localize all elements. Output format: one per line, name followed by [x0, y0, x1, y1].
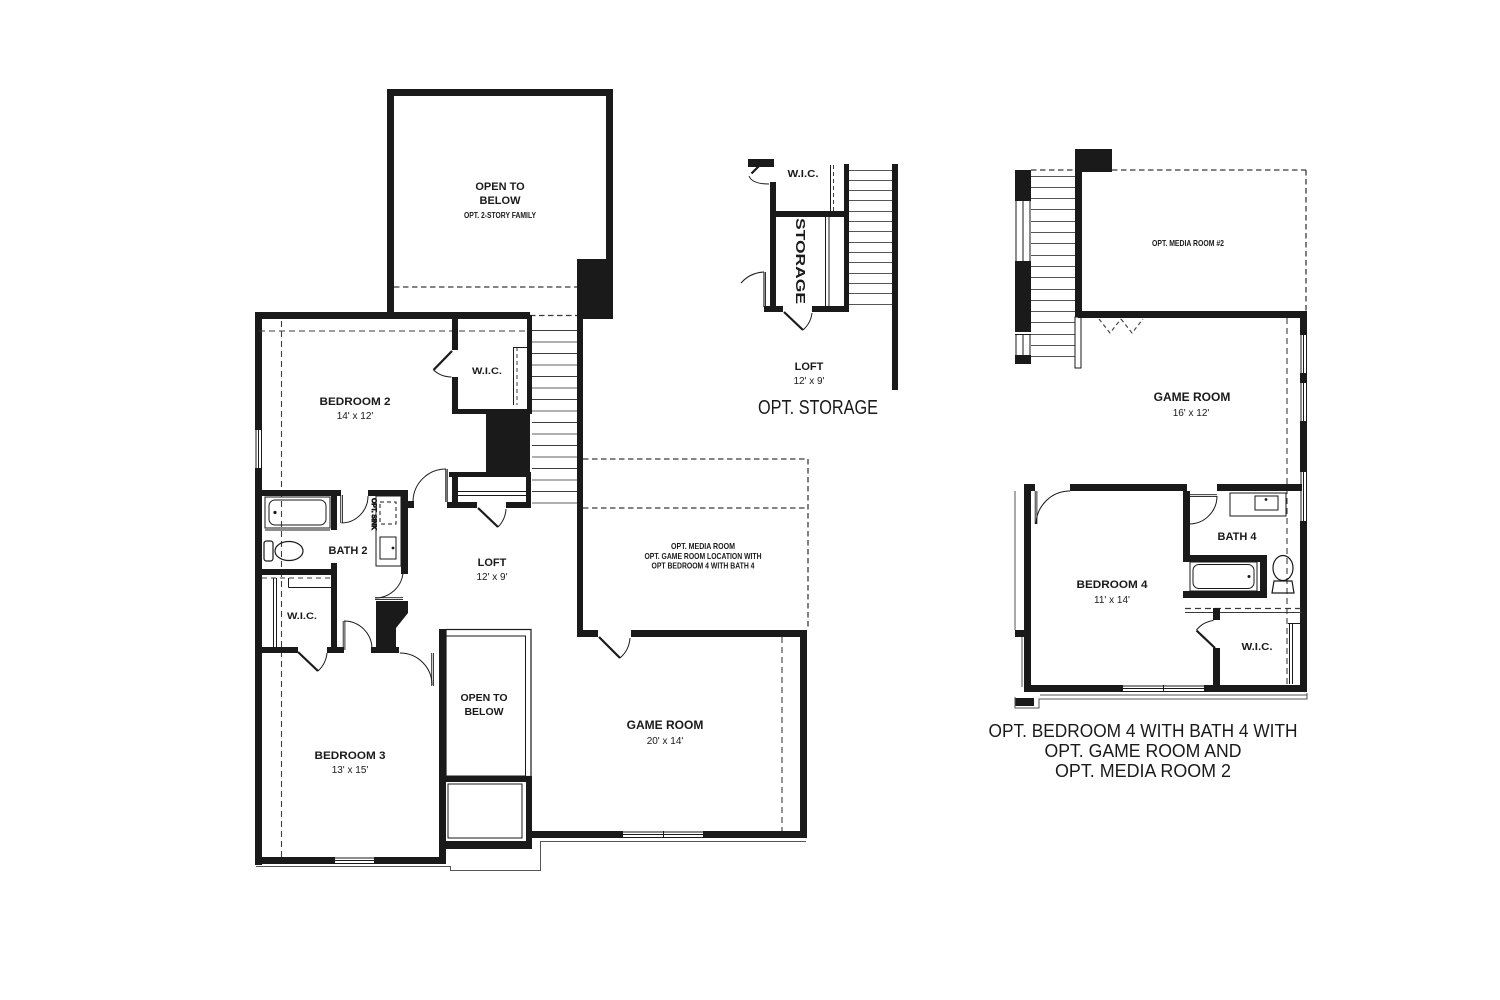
svg-text:BEDROOM 4: BEDROOM 4 — [1077, 579, 1149, 591]
svg-text:OPT. BEDROOM 4 WITH BATH 4 WIT: OPT. BEDROOM 4 WITH BATH 4 WITH — [989, 721, 1298, 741]
svg-text:13' x 15': 13' x 15' — [332, 765, 369, 776]
svg-text:OPT. GAME ROOM AND: OPT. GAME ROOM AND — [1045, 741, 1242, 761]
svg-text:GAME ROOM: GAME ROOM — [1154, 390, 1231, 404]
svg-text:LOFT: LOFT — [795, 361, 824, 373]
svg-text:OPT. SINK: OPT. SINK — [370, 498, 377, 530]
svg-text:OPT. GAME ROOM LOCATION WITH: OPT. GAME ROOM LOCATION WITH — [645, 551, 762, 561]
svg-text:OPEN TO: OPEN TO — [475, 181, 525, 193]
svg-text:W.I.C.: W.I.C. — [788, 169, 819, 180]
svg-text:STORAGE: STORAGE — [793, 218, 807, 304]
svg-text:20' x 14': 20' x 14' — [647, 736, 684, 747]
svg-text:W.I.C.: W.I.C. — [287, 611, 317, 622]
svg-text:16' x 12': 16' x 12' — [1173, 408, 1210, 419]
svg-text:OPT. STORAGE: OPT. STORAGE — [758, 397, 878, 419]
svg-text:W.I.C.: W.I.C. — [1242, 642, 1273, 653]
svg-text:OPEN TO: OPEN TO — [460, 692, 507, 704]
svg-text:OPT. MEDIA ROOM #2: OPT. MEDIA ROOM #2 — [1152, 238, 1224, 248]
svg-text:BEDROOM 3: BEDROOM 3 — [315, 750, 386, 762]
svg-text:BEDROOM 2: BEDROOM 2 — [320, 396, 391, 408]
svg-text:BATH 2: BATH 2 — [329, 545, 368, 557]
svg-text:12' x 9': 12' x 9' — [476, 572, 507, 583]
svg-text:GAME ROOM: GAME ROOM — [627, 718, 704, 732]
svg-text:W.I.C.: W.I.C. — [472, 366, 502, 377]
svg-text:OPT. MEDIA ROOM 2: OPT. MEDIA ROOM 2 — [1055, 761, 1231, 781]
svg-text:OPT. MEDIA ROOM: OPT. MEDIA ROOM — [671, 541, 735, 551]
svg-text:11' x 14': 11' x 14' — [1094, 595, 1130, 606]
svg-text:12' x 9': 12' x 9' — [793, 376, 824, 387]
svg-text:OPT. 2-STORY FAMILY: OPT. 2-STORY FAMILY — [464, 211, 537, 220]
svg-text:BELOW: BELOW — [464, 706, 503, 718]
svg-text:LOFT: LOFT — [478, 557, 507, 569]
svg-text:14' x 12': 14' x 12' — [337, 411, 374, 422]
svg-text:OPT BEDROOM 4 WITH BATH 4: OPT BEDROOM 4 WITH BATH 4 — [652, 561, 755, 571]
svg-text:BELOW: BELOW — [480, 195, 522, 207]
svg-text:BATH 4: BATH 4 — [1218, 531, 1258, 543]
